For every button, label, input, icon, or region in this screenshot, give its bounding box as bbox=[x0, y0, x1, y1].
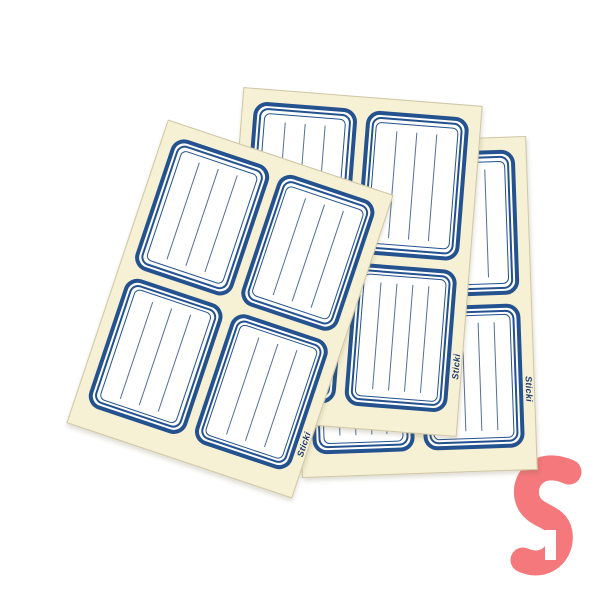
logo-dot bbox=[550, 560, 558, 568]
label-border-ring bbox=[350, 268, 452, 406]
writing-line bbox=[139, 308, 172, 405]
brand-text: Sticki bbox=[523, 373, 534, 405]
writing-line bbox=[226, 337, 259, 434]
writing-line bbox=[408, 133, 417, 240]
label-inner-ring bbox=[355, 273, 447, 402]
writing-line bbox=[158, 315, 191, 412]
brand-text: Sticki bbox=[450, 350, 462, 383]
writing-line bbox=[478, 323, 483, 431]
writing-line bbox=[291, 205, 324, 302]
label-border-ring bbox=[139, 143, 265, 291]
writing-line bbox=[272, 198, 305, 295]
writing-line bbox=[420, 286, 429, 393]
writing-line bbox=[404, 285, 413, 392]
writing-line bbox=[372, 283, 381, 390]
label-inner-ring bbox=[251, 184, 365, 320]
writing-line bbox=[264, 350, 297, 447]
writing-line bbox=[388, 131, 397, 238]
writing-line bbox=[388, 284, 397, 391]
writing-line bbox=[120, 302, 153, 399]
product-photo-scene: StickiStickiSticki bbox=[0, 0, 600, 600]
brand-logo-s-icon bbox=[495, 452, 600, 602]
label-inner-ring bbox=[98, 288, 212, 424]
writing-line bbox=[428, 134, 437, 241]
writing-line bbox=[493, 322, 498, 430]
writing-line bbox=[186, 169, 219, 266]
writing-line bbox=[167, 163, 200, 260]
label-inner-ring bbox=[145, 149, 259, 285]
label-border-ring bbox=[245, 179, 371, 327]
writing-line bbox=[310, 211, 343, 308]
logo-notch bbox=[545, 530, 556, 560]
writing-line bbox=[484, 169, 489, 277]
writing-line bbox=[204, 176, 237, 273]
writing-line bbox=[245, 344, 278, 441]
label-border-ring bbox=[93, 282, 219, 430]
